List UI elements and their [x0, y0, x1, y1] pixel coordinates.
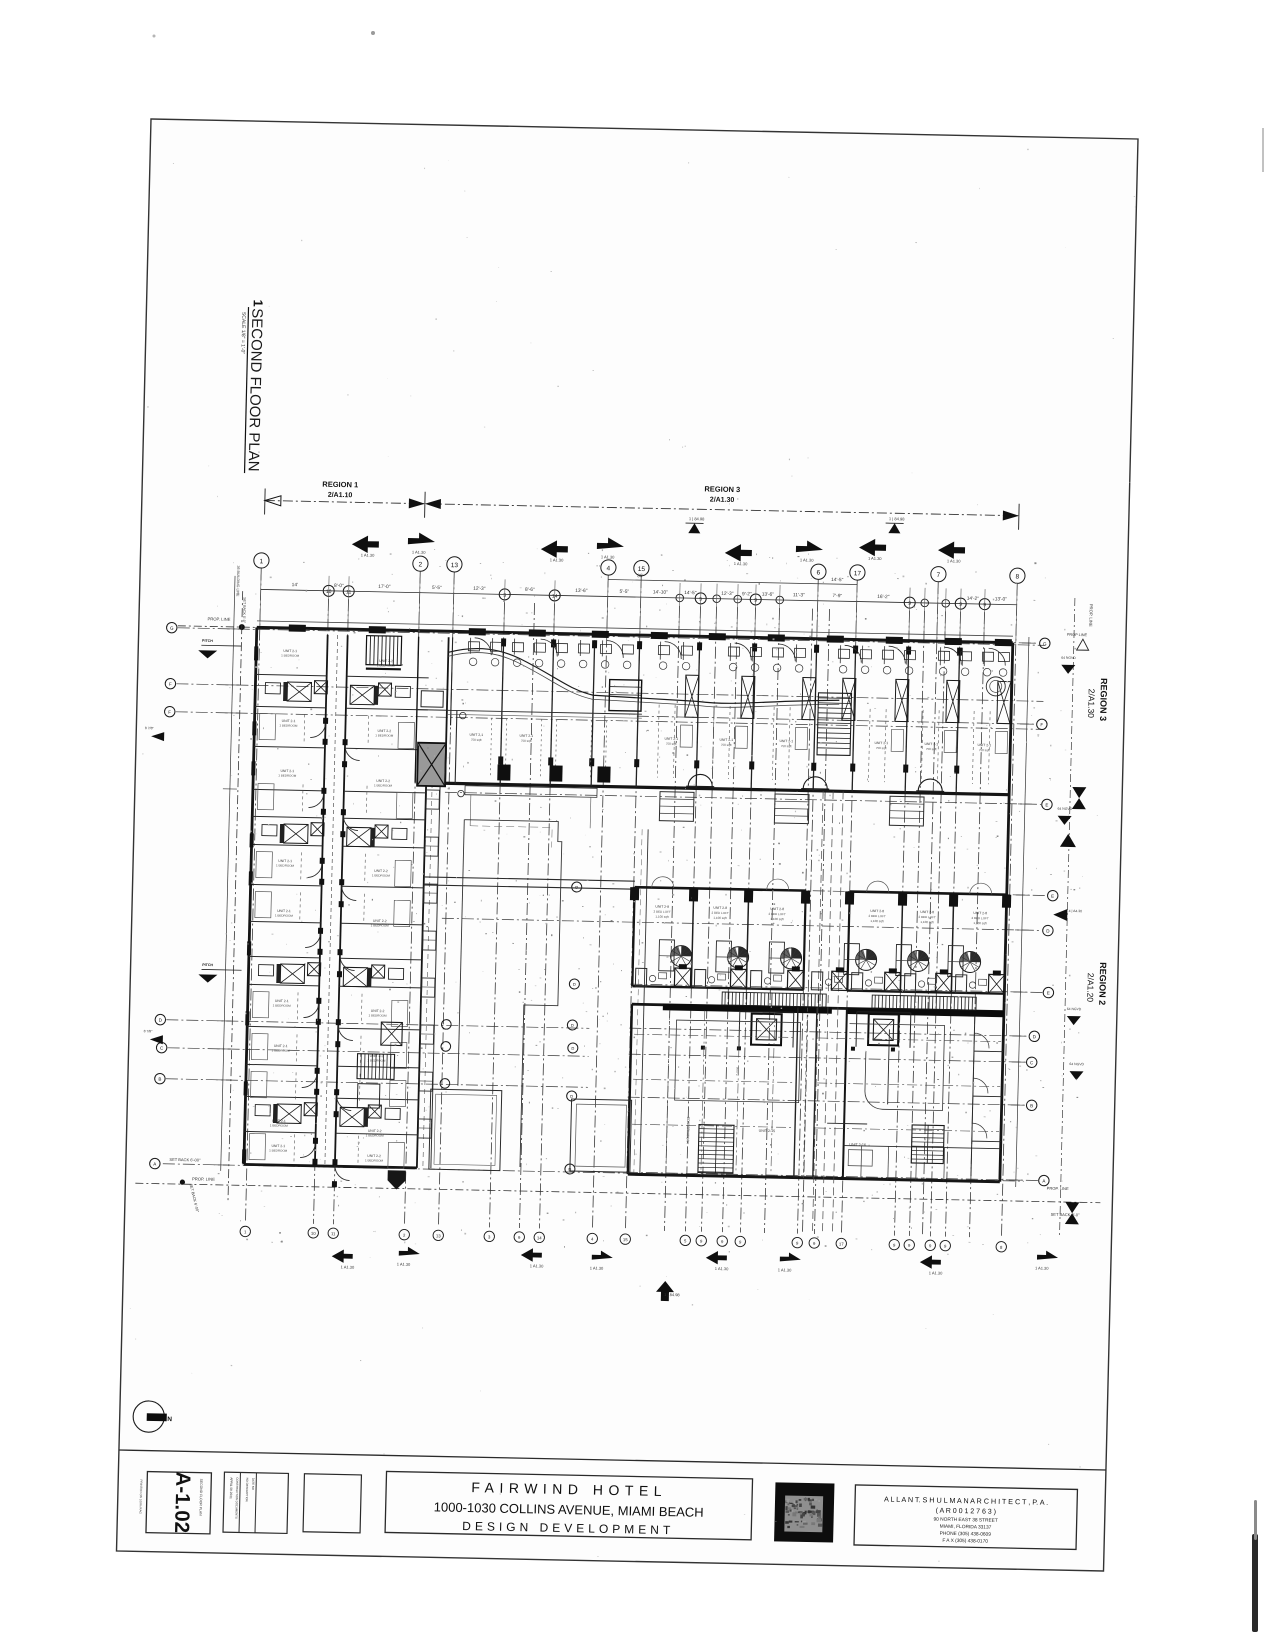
svg-text:UNIT 2-1: UNIT 2-1: [874, 741, 888, 745]
svg-text:1,100 sqft: 1,100 sqft: [973, 921, 986, 925]
svg-text:750 sqft: 750 sqft: [721, 743, 732, 747]
svg-text:1 A1.30: 1 A1.30: [550, 557, 564, 562]
svg-text:9'-2": 9'-2": [742, 591, 752, 597]
svg-text:WXYZ: WXYZ: [735, 1067, 739, 1076]
svg-text:12'-3": 12'-3": [473, 586, 486, 592]
svg-text:PITCH: PITCH: [202, 639, 213, 643]
svg-text:17: 17: [854, 570, 862, 577]
svg-text:REGION 3: REGION 3: [704, 484, 740, 494]
svg-text:1 BEDROOM: 1 BEDROOM: [375, 733, 394, 737]
svg-text:8 7/8": 8 7/8": [145, 726, 155, 730]
svg-text:13: 13: [451, 562, 459, 569]
svg-text:1 A1.30: 1 A1.30: [929, 1270, 943, 1275]
svg-text:PROP LINE: PROP LINE: [1067, 633, 1088, 637]
svg-text:SCALE 1/8" = 1'-0": SCALE 1/8" = 1'-0": [239, 312, 246, 355]
svg-text:1,100 sqft: 1,100 sqft: [770, 917, 783, 921]
svg-text:8'-6": 8'-6": [525, 587, 535, 593]
svg-text:15: 15: [638, 566, 646, 573]
svg-text:UNIT 2-8: UNIT 2-8: [973, 911, 987, 915]
svg-text:2 BED LOFT: 2 BED LOFT: [919, 915, 936, 919]
svg-text:1 A1.30: 1 A1.30: [530, 1263, 544, 1268]
svg-text:1,100 sqft: 1,100 sqft: [713, 916, 726, 920]
svg-text:1 BEDROOM: 1 BEDROOM: [276, 863, 295, 867]
svg-text:14'-5": 14'-5": [831, 577, 844, 583]
svg-text:1 BEDROOM: 1 BEDROOM: [374, 783, 393, 787]
svg-text:D: D: [571, 1046, 574, 1051]
svg-text:7: 7: [936, 572, 940, 579]
svg-text:1 BEDROOM: 1 BEDROOM: [269, 1148, 288, 1152]
svg-text:64 NGVD: 64 NGVD: [1061, 656, 1076, 660]
svg-text:PROP. LINE: PROP. LINE: [1047, 1186, 1069, 1191]
svg-text:SET BACK 0'-0": SET BACK 0'-0": [1051, 1212, 1080, 1218]
svg-text:B: B: [158, 1077, 161, 1082]
svg-text:17: 17: [839, 1241, 844, 1246]
svg-text:36 BUILDING LINE: 36 BUILDING LINE: [236, 565, 241, 597]
svg-text:G: G: [1043, 641, 1047, 646]
svg-text:1 A1.30: 1 A1.30: [868, 556, 882, 561]
svg-text:1 A1.30: 1 A1.30: [1035, 1265, 1049, 1270]
svg-text:1 A1.30: 1 A1.30: [715, 1266, 729, 1271]
svg-text:2 BED LOFT: 2 BED LOFT: [712, 911, 729, 915]
svg-text:4: 4: [606, 565, 610, 572]
svg-text:1,100 sqft: 1,100 sqft: [870, 919, 883, 923]
svg-text:1 A1.30: 1 A1.30: [412, 549, 426, 554]
svg-text:15: 15: [623, 1237, 628, 1242]
svg-text:750 sqft: 750 sqft: [926, 747, 937, 751]
svg-text:5'-5": 5'-5": [619, 589, 629, 595]
svg-text:E: E: [1045, 802, 1048, 807]
svg-text:1 BEDROOM: 1 BEDROOM: [278, 773, 297, 777]
svg-text:12'-3": 12'-3": [721, 591, 734, 597]
svg-text:14': 14': [292, 582, 298, 588]
svg-text:UNIT 2-8: UNIT 2-8: [655, 905, 669, 909]
svg-text:13'-6": 13'-6": [762, 592, 775, 598]
svg-text:8 7/8": 8 7/8": [144, 1029, 154, 1033]
svg-text:D: D: [570, 1094, 573, 1099]
svg-text:2/A1.30: 2/A1.30: [1086, 689, 1097, 719]
svg-text:1 A1.30: 1 A1.30: [590, 1265, 604, 1270]
svg-text:PHONE (305) 438-0609: PHONE (305) 438-0609: [940, 1531, 992, 1538]
svg-text:13'-0": 13'-0": [995, 596, 1008, 602]
svg-text:8'-0": 8'-0": [334, 583, 344, 589]
svg-text:750 sqft: 750 sqft: [781, 744, 792, 748]
svg-text:G: G: [170, 626, 174, 631]
svg-text:D: D: [571, 1023, 574, 1028]
svg-text:1 BEDROOM: 1 BEDROOM: [279, 723, 298, 727]
svg-text:UNIT 2-8: UNIT 2-8: [920, 910, 934, 914]
svg-text:UNIT 2-1: UNIT 2-1: [779, 739, 793, 743]
svg-text:A-1.02: A-1.02: [170, 1471, 194, 1533]
svg-text:A: A: [153, 1162, 156, 1167]
svg-text:14'-10": 14'-10": [653, 589, 668, 595]
svg-text:1 | 84.98: 1 | 84.98: [889, 516, 905, 521]
svg-text:1,100 sqft: 1,100 sqft: [655, 915, 668, 919]
svg-text:CONSERVATORY: CONSERVATORY: [686, 1116, 691, 1145]
svg-text:13: 13: [436, 1233, 441, 1238]
svg-text:DATE NO: DATE NO: [251, 1478, 255, 1491]
svg-text:B: B: [1030, 1103, 1033, 1108]
svg-text:UNIT 2-15: UNIT 2-15: [759, 1129, 776, 1133]
svg-text:6: 6: [816, 570, 820, 577]
svg-text:1: 1: [251, 299, 266, 307]
svg-text:8: 8: [1015, 574, 1019, 581]
svg-text:PROP. LINE: PROP. LINE: [1088, 604, 1094, 627]
svg-text:1,100 sqft: 1,100 sqft: [920, 920, 933, 924]
svg-text:1 BEDROOM: 1 BEDROOM: [273, 1003, 292, 1007]
svg-text:UNIT 2-1: UNIT 2-1: [469, 733, 483, 737]
svg-text:2 BED LOFT: 2 BED LOFT: [972, 916, 989, 920]
svg-text:UNIT 2-8: UNIT 2-8: [713, 906, 727, 910]
svg-text:4 | A4.30: 4 | A4.30: [1069, 909, 1083, 913]
svg-text:64 NGVD: 64 NGVD: [1067, 1007, 1082, 1011]
svg-text:1 A1.30: 1 A1.30: [778, 1267, 792, 1272]
svg-text:N: N: [167, 1416, 172, 1423]
svg-text:36': 36': [637, 573, 643, 579]
svg-text:NO DESCRIPTION: NO DESCRIPTION: [245, 1478, 250, 1502]
svg-text:UNIT 2-8: UNIT 2-8: [870, 909, 884, 913]
svg-text:17'-0": 17'-0": [378, 584, 391, 590]
svg-text:1 | 84.98: 1 | 84.98: [664, 1292, 680, 1297]
svg-text:2/A1.30: 2/A1.30: [710, 497, 735, 504]
svg-text:64 NGVD: 64 NGVD: [1058, 807, 1073, 811]
svg-text:750 sqft: 750 sqft: [979, 748, 990, 752]
svg-text:14: 14: [537, 1235, 542, 1240]
svg-text:1 A1.30: 1 A1.30: [341, 1264, 355, 1269]
svg-text:F A X (305) 438-0170: F A X (305) 438-0170: [942, 1538, 988, 1545]
svg-text:APRIL 09 2001: APRIL 09 2001: [229, 1477, 234, 1499]
svg-text:1 BEDROOM: 1 BEDROOM: [272, 1048, 291, 1052]
svg-text:1 BEDROOM: 1 BEDROOM: [368, 1013, 387, 1017]
svg-text:F: F: [1040, 722, 1043, 727]
svg-text:750 sqft: 750 sqft: [471, 738, 482, 742]
svg-text:1 A1.30: 1 A1.30: [601, 554, 615, 559]
svg-text:750 sqft: 750 sqft: [521, 739, 532, 743]
svg-text:A: A: [1042, 1179, 1045, 1184]
svg-text:UNIT 2-1: UNIT 2-1: [719, 738, 733, 742]
svg-text:13'-6": 13'-6": [575, 588, 588, 594]
svg-text:UNIT 2-1: UNIT 2-1: [924, 742, 938, 746]
svg-text:2 BED LOFT: 2 BED LOFT: [869, 914, 886, 918]
svg-text:2/A1.20: 2/A1.20: [1085, 973, 1096, 1003]
svg-text:PRINTED ON 100% RAG: PRINTED ON 100% RAG: [138, 1479, 143, 1514]
svg-text:REGION 1: REGION 1: [322, 480, 358, 490]
svg-text:D: D: [575, 885, 578, 890]
svg-text:F: F: [168, 710, 171, 715]
svg-text:SET BACK 6'-00": SET BACK 6'-00": [169, 1157, 201, 1163]
svg-text:14'-5": 14'-5": [684, 590, 697, 596]
svg-text:11'-3": 11'-3": [793, 592, 805, 598]
svg-text:1 | 84.98: 1 | 84.98: [689, 516, 705, 521]
svg-text:E: E: [1047, 991, 1050, 996]
svg-text:16'-2": 16'-2": [877, 594, 890, 600]
svg-text:REGION 3: REGION 3: [1098, 678, 1109, 721]
svg-text:1 A1.30: 1 A1.30: [800, 557, 814, 562]
svg-text:1 A1.30: 1 A1.30: [361, 552, 375, 557]
svg-text:PROP. LINE: PROP. LINE: [207, 616, 230, 621]
svg-text:2/A1.10: 2/A1.10: [328, 492, 353, 499]
svg-text:PITCH: PITCH: [202, 963, 213, 967]
svg-text:D: D: [573, 982, 576, 987]
svg-text:1 A1.30: 1 A1.30: [734, 561, 748, 566]
svg-text:14'-2": 14'-2": [967, 596, 980, 602]
svg-text:1 BEDROOM: 1 BEDROOM: [270, 1123, 289, 1127]
svg-text:MIAMI, FLORIDA 33137: MIAMI, FLORIDA 33137: [940, 1524, 992, 1531]
svg-text:UNIT 2-8: UNIT 2-8: [770, 907, 784, 911]
svg-text:E: E: [1051, 894, 1054, 899]
svg-text:1 BEDROOM: 1 BEDROOM: [281, 653, 300, 657]
svg-text:2 BED LOFT: 2 BED LOFT: [769, 912, 786, 916]
svg-text:1 A1.30: 1 A1.30: [947, 558, 961, 563]
svg-text:F: F: [169, 682, 172, 687]
svg-text:64 NGVD: 64 NGVD: [1069, 1062, 1084, 1066]
svg-text:5'-5": 5'-5": [432, 585, 442, 591]
svg-text:PROP. LINE: PROP. LINE: [192, 1176, 215, 1181]
svg-text:1 BEDROOM: 1 BEDROOM: [366, 1133, 385, 1137]
svg-text:1 BEDROOM: 1 BEDROOM: [275, 913, 294, 917]
svg-text:10: 10: [311, 1231, 316, 1236]
svg-text:1 A1.30: 1 A1.30: [397, 1262, 411, 1267]
svg-text:UNIT 2-16: UNIT 2-16: [849, 1143, 866, 1147]
svg-text:11: 11: [331, 1231, 336, 1236]
svg-text:( A R 0 0 1 2 7 6 3 ): ( A R 0 0 1 2 7 6 3 ): [936, 1508, 996, 1516]
svg-text:UNIT 2-1: UNIT 2-1: [664, 737, 678, 741]
svg-text:1: 1: [259, 558, 263, 565]
svg-text:1 BEDROOM: 1 BEDROOM: [365, 1158, 384, 1162]
svg-text:750 sqft: 750 sqft: [666, 742, 677, 746]
svg-text:1 BEDROOM: 1 BEDROOM: [371, 923, 390, 927]
svg-text:1 BEDROOM: 1 BEDROOM: [372, 873, 391, 877]
svg-text:2 BED LOFT: 2 BED LOFT: [654, 910, 671, 914]
svg-text:REGION 2: REGION 2: [1097, 962, 1108, 1005]
svg-text:2: 2: [418, 561, 422, 568]
svg-text:UNIT 2-1: UNIT 2-1: [519, 734, 533, 738]
